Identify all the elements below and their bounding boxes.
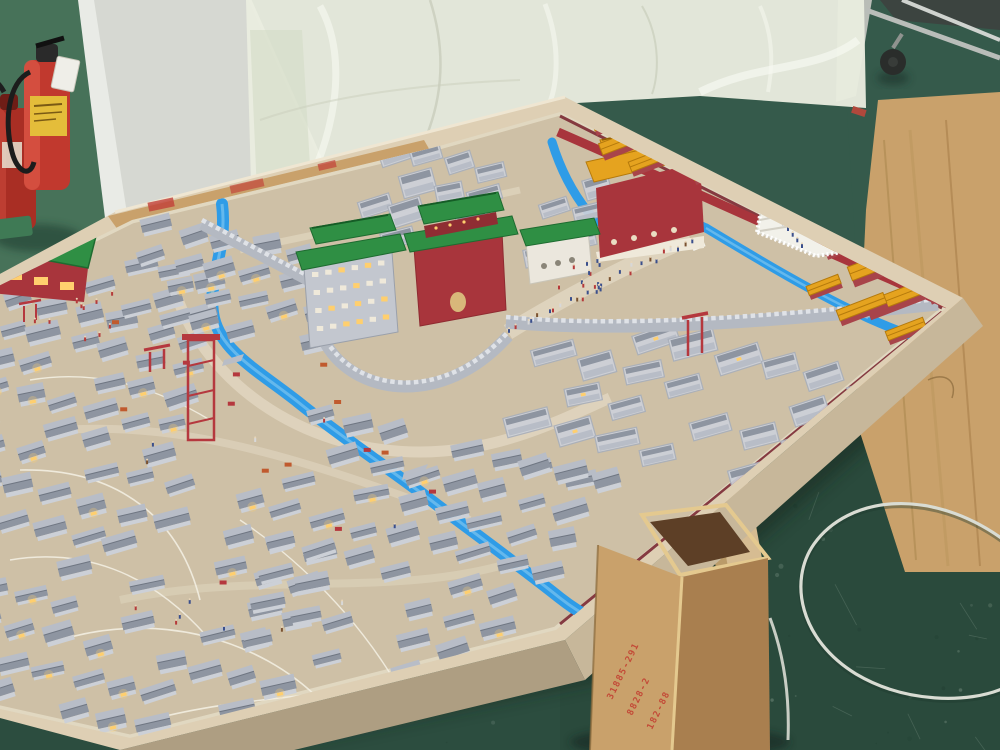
floor-speckle bbox=[957, 650, 960, 653]
tower-window bbox=[381, 297, 387, 302]
floor-speckle bbox=[788, 635, 790, 637]
figure bbox=[685, 241, 687, 247]
floor-speckle bbox=[959, 688, 963, 692]
floor-speckle bbox=[887, 732, 889, 734]
tower-window bbox=[383, 315, 389, 320]
figure bbox=[582, 296, 584, 302]
figure bbox=[596, 288, 598, 294]
figure bbox=[587, 289, 589, 295]
figure bbox=[152, 441, 154, 447]
box-right-face bbox=[672, 558, 770, 750]
street-cart bbox=[334, 400, 341, 404]
street-cart bbox=[364, 448, 371, 452]
tower-window bbox=[340, 285, 346, 290]
photo-canvas: 31885-291 8828-2 182-88 bbox=[0, 0, 1000, 750]
figure bbox=[530, 317, 532, 323]
floor-speckle bbox=[970, 604, 973, 607]
floor-speckle bbox=[907, 737, 912, 742]
street-cart bbox=[382, 451, 389, 455]
figure bbox=[189, 598, 191, 604]
tower-window bbox=[343, 321, 349, 326]
floor-speckle bbox=[779, 564, 784, 569]
figure bbox=[641, 260, 643, 266]
figure bbox=[135, 605, 137, 611]
figure bbox=[663, 248, 665, 254]
figure bbox=[670, 246, 672, 252]
tower-window bbox=[378, 261, 384, 266]
figure bbox=[254, 436, 256, 442]
figure bbox=[586, 260, 588, 266]
tower-window bbox=[317, 326, 323, 331]
workshop-photo: 31885-291 8828-2 182-88 bbox=[0, 0, 1000, 750]
figure bbox=[508, 327, 510, 333]
street-cart bbox=[120, 407, 127, 411]
street-cart bbox=[112, 320, 119, 324]
figure bbox=[111, 290, 113, 296]
figure bbox=[515, 324, 517, 330]
tower-window bbox=[353, 283, 359, 288]
floor-speckle bbox=[857, 628, 861, 632]
floor-speckle bbox=[935, 635, 939, 639]
figure bbox=[573, 264, 575, 270]
tower-window bbox=[327, 288, 333, 293]
tower-window bbox=[325, 270, 331, 275]
figure bbox=[677, 246, 679, 252]
figure bbox=[536, 311, 538, 317]
tower-window bbox=[342, 303, 348, 308]
figure bbox=[552, 307, 554, 313]
figure bbox=[594, 283, 596, 289]
figure bbox=[691, 238, 693, 244]
figure bbox=[341, 600, 343, 606]
figure bbox=[630, 261, 632, 267]
floor-speckle bbox=[944, 721, 947, 724]
tower-window bbox=[370, 317, 376, 322]
floor-speckle bbox=[770, 698, 773, 701]
figure bbox=[76, 298, 78, 304]
figure bbox=[80, 303, 82, 309]
figure bbox=[600, 286, 602, 292]
figure bbox=[83, 304, 85, 310]
street-cart bbox=[335, 527, 342, 531]
figure bbox=[96, 298, 98, 304]
tower-window bbox=[380, 279, 386, 284]
tower-window bbox=[355, 301, 361, 306]
floor-speckle bbox=[446, 742, 448, 744]
figure bbox=[175, 619, 177, 625]
floor-speckle bbox=[942, 686, 946, 690]
figure bbox=[34, 318, 36, 324]
tower-window bbox=[314, 290, 320, 295]
figure bbox=[630, 270, 632, 276]
tower-window bbox=[365, 263, 371, 268]
street-cart bbox=[320, 363, 327, 367]
figure bbox=[599, 261, 601, 267]
street-cart bbox=[220, 581, 227, 585]
floor-speckle bbox=[775, 573, 779, 577]
floor-speckle bbox=[795, 695, 797, 697]
figure bbox=[582, 282, 584, 288]
figure bbox=[649, 256, 651, 262]
figure bbox=[99, 331, 101, 337]
figure bbox=[570, 295, 572, 301]
figure bbox=[801, 242, 803, 248]
figure bbox=[609, 275, 611, 281]
figure bbox=[394, 523, 396, 529]
figure bbox=[549, 308, 551, 314]
figure bbox=[559, 302, 561, 308]
figure bbox=[598, 284, 600, 290]
figure bbox=[49, 318, 51, 324]
figure bbox=[792, 231, 794, 237]
floor-speckle bbox=[876, 743, 877, 744]
figure bbox=[109, 323, 111, 329]
figure bbox=[576, 296, 578, 302]
figure bbox=[596, 257, 598, 263]
street-cart bbox=[262, 469, 269, 473]
tower-window bbox=[315, 308, 321, 313]
figure bbox=[656, 258, 658, 264]
tower-window bbox=[328, 306, 334, 311]
street-cart bbox=[228, 402, 235, 406]
tower-window bbox=[366, 281, 372, 286]
figure bbox=[528, 319, 530, 325]
figure bbox=[619, 268, 621, 274]
figure bbox=[796, 237, 798, 243]
tower-window bbox=[352, 265, 358, 270]
street-cart bbox=[183, 361, 190, 365]
figure bbox=[146, 459, 148, 465]
figure bbox=[223, 625, 225, 631]
tower-window bbox=[330, 324, 336, 329]
figure bbox=[323, 417, 325, 423]
figure bbox=[558, 284, 560, 290]
figure bbox=[588, 269, 590, 275]
floor-speckle bbox=[491, 721, 495, 725]
floor-speckle bbox=[988, 603, 992, 607]
tower-window bbox=[356, 319, 362, 324]
tower-window bbox=[368, 299, 374, 304]
street-cart bbox=[233, 372, 240, 376]
figure bbox=[84, 336, 86, 342]
figure bbox=[179, 613, 181, 619]
figure bbox=[281, 626, 283, 632]
tower-window bbox=[338, 267, 344, 272]
street-cart bbox=[285, 463, 292, 467]
tower-window bbox=[312, 272, 318, 277]
street-cart bbox=[429, 490, 436, 494]
